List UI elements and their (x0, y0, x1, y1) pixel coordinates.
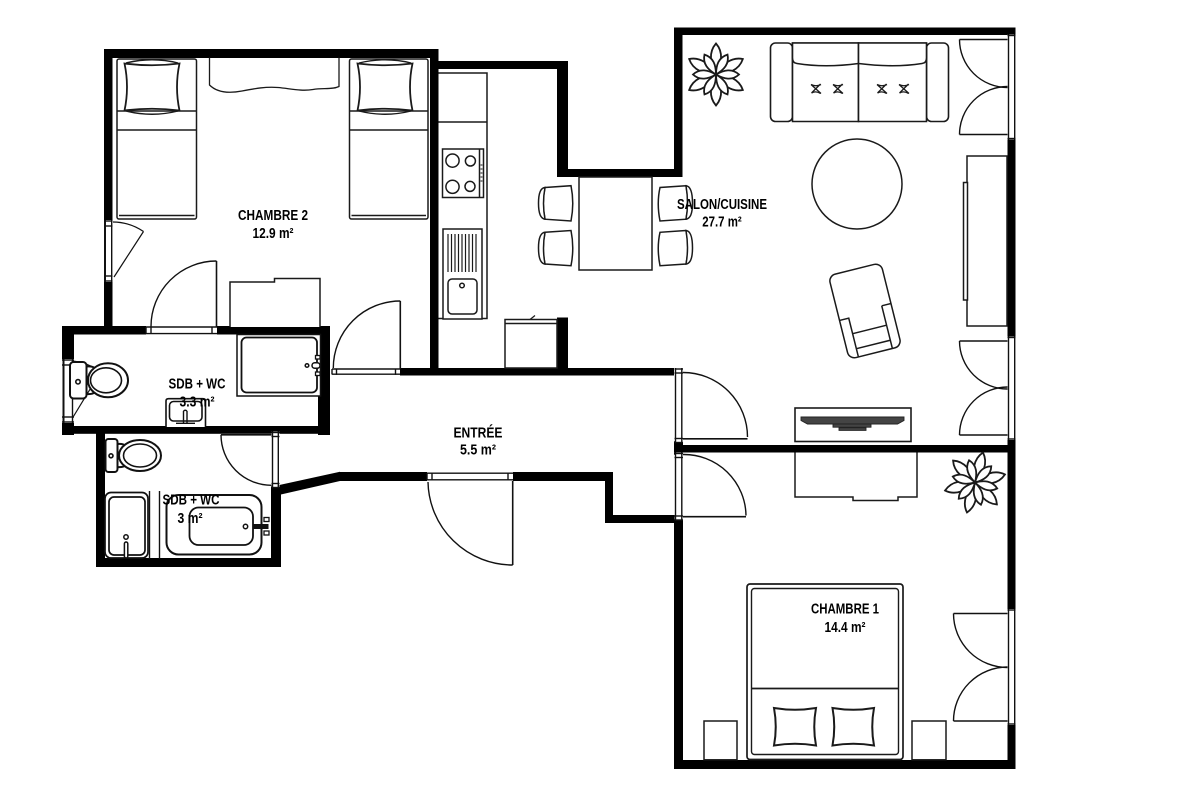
svg-text:CHAMBRE 2: CHAMBRE 2 (238, 208, 308, 224)
svg-text:SDB + WC: SDB + WC (169, 377, 226, 393)
svg-text:12.9 m²: 12.9 m² (253, 226, 294, 242)
svg-text:CHAMBRE 1: CHAMBRE 1 (811, 602, 879, 618)
svg-text:14.4 m²: 14.4 m² (825, 620, 866, 636)
svg-text:27.7 m²: 27.7 m² (702, 215, 742, 231)
svg-text:SDB + WC: SDB + WC (163, 493, 220, 509)
svg-text:3.3 m²: 3.3 m² (180, 395, 215, 411)
svg-text:3 m²: 3 m² (178, 511, 203, 527)
svg-text:5.5 m²: 5.5 m² (460, 443, 496, 459)
svg-text:ENTRÉE: ENTRÉE (454, 425, 503, 442)
svg-text:SALON/CUISINE: SALON/CUISINE (677, 197, 767, 213)
